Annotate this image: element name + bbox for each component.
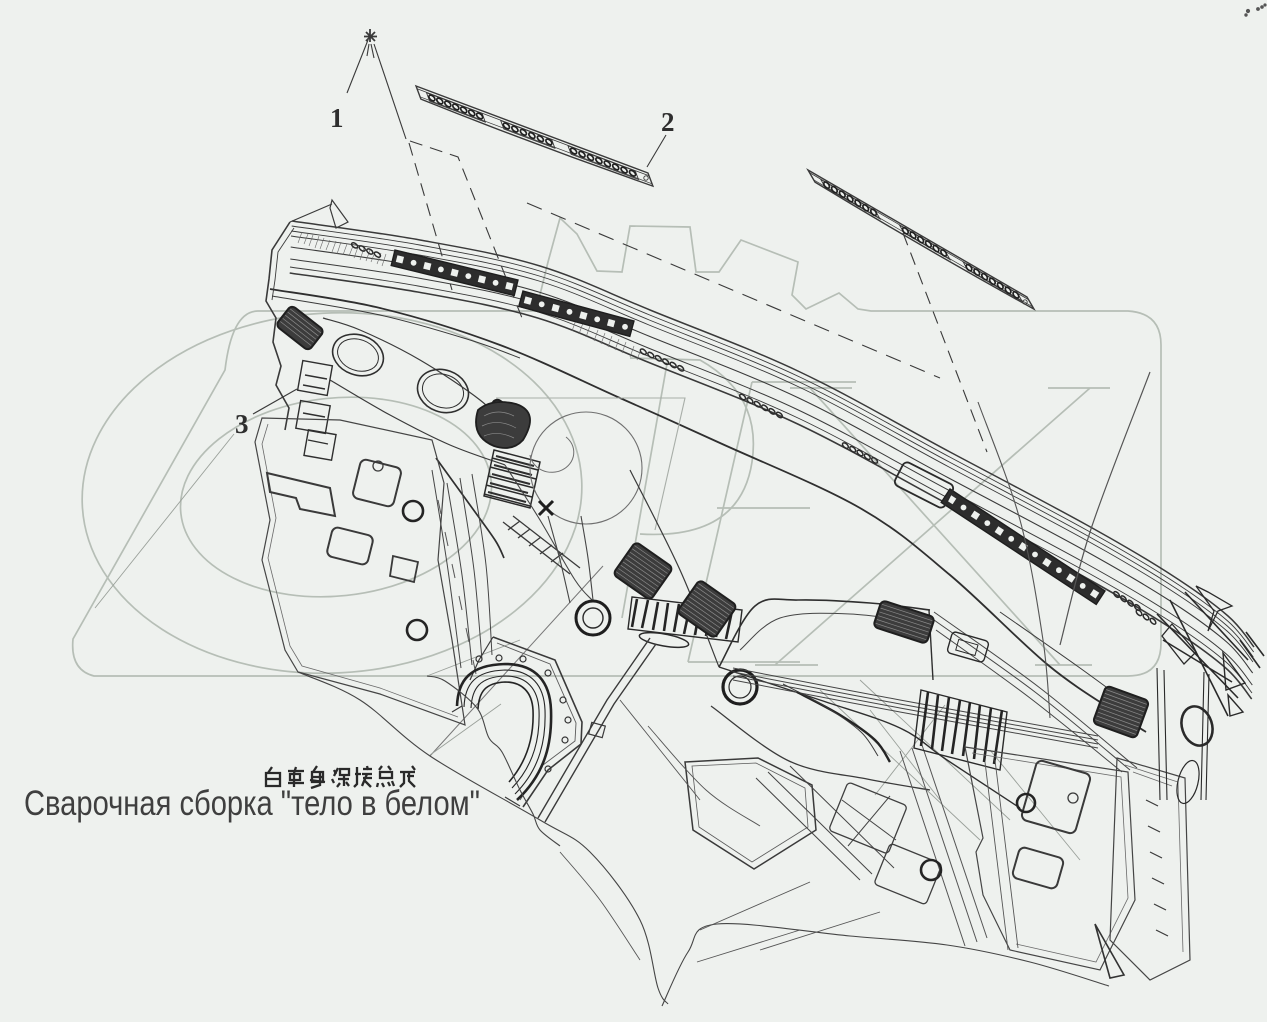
svg-text:Сварочная сборка "тело в белом: Сварочная сборка "тело в белом" xyxy=(24,784,480,823)
svg-text:3: 3 xyxy=(235,409,249,439)
svg-text:1: 1 xyxy=(330,103,344,133)
svg-text:2: 2 xyxy=(661,107,675,137)
